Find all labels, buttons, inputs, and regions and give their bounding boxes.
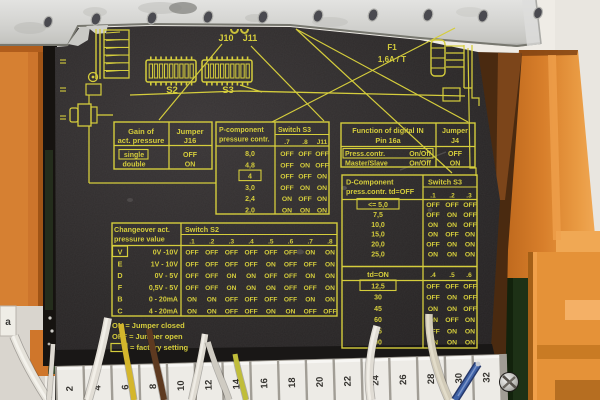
svg-text:0,5V - 5V: 0,5V - 5V [149, 285, 179, 292]
svg-text:OFF: OFF [463, 284, 477, 291]
svg-text:OFF: OFF [185, 285, 198, 292]
svg-text:P-component: P-component [219, 127, 264, 134]
svg-text:OFF: OFF [225, 261, 238, 268]
svg-text:On/Off: On/Off [409, 151, 431, 158]
svg-text:OFF: OFF [183, 152, 198, 159]
svg-text:OFF: OFF [463, 212, 477, 219]
svg-text:ON: ON [266, 309, 276, 316]
svg-text:OFF: OFF [185, 273, 198, 280]
svg-text:Gain of: Gain of [128, 127, 154, 136]
svg-text:ON: ON [246, 285, 256, 292]
svg-text:OFF: OFF [264, 273, 277, 280]
svg-text:OFF: OFF [205, 250, 218, 257]
svg-text:ON: ON [447, 328, 457, 335]
svg-text:16: 16 [259, 378, 270, 389]
svg-text:.1: .1 [430, 193, 436, 200]
svg-text:ON: ON [226, 273, 236, 280]
svg-text:OFF: OFF [284, 273, 297, 280]
svg-text:Jumper: Jumper [176, 127, 203, 136]
svg-text:2,4: 2,4 [245, 196, 255, 203]
svg-text:act. pressure: act. pressure [118, 136, 165, 145]
svg-text:2: 2 [65, 386, 76, 392]
svg-text:OFF: OFF [315, 162, 329, 169]
svg-text:15,0: 15,0 [371, 232, 385, 239]
svg-text:OFF: OFF [463, 222, 477, 229]
svg-text:OFF: OFF [463, 202, 477, 209]
svg-text:ON: ON [465, 328, 475, 335]
svg-text:18: 18 [287, 377, 298, 388]
svg-text:OFF: OFF [185, 261, 198, 268]
svg-text:ON: ON [447, 340, 457, 347]
svg-text:1,6A / T: 1,6A / T [378, 55, 406, 64]
svg-text:ON: ON [305, 297, 315, 304]
svg-text:0V - 5V: 0V - 5V [155, 273, 179, 280]
svg-text:ON: ON [286, 309, 296, 316]
svg-text:single: single [124, 152, 144, 159]
svg-text:ON: ON [266, 261, 276, 268]
svg-text:OFF: OFF [426, 295, 440, 302]
svg-text:ON: ON [187, 309, 197, 316]
svg-text:.7: .7 [284, 139, 290, 146]
svg-text:.6: .6 [466, 272, 472, 279]
svg-text:ON: ON [317, 174, 327, 181]
svg-text:ON: ON [282, 208, 292, 215]
svg-text:ON: ON [325, 250, 335, 257]
svg-text:F: F [118, 283, 123, 292]
svg-text:2,0: 2,0 [245, 208, 255, 215]
svg-text:10,0: 10,0 [371, 222, 385, 229]
svg-text:ON: ON [428, 252, 438, 259]
svg-text:ON: ON [325, 297, 335, 304]
svg-text:0 - 20mA: 0 - 20mA [149, 297, 178, 304]
svg-text:ON: ON [447, 242, 457, 249]
svg-text:.5: .5 [449, 272, 455, 279]
svg-text:ON: ON [300, 162, 310, 169]
svg-text:OFF: OFF [264, 250, 277, 257]
svg-text:S3: S3 [222, 85, 234, 96]
svg-text:OFF: OFF [205, 273, 218, 280]
svg-text:.7: .7 [307, 239, 313, 246]
svg-text:OFF: OFF [284, 297, 297, 304]
svg-text:OFF: OFF [445, 284, 459, 291]
svg-text:Changeover act.: Changeover act. [114, 225, 170, 234]
svg-text:Master/Slave: Master/Slave [345, 161, 388, 168]
svg-text:OFF: OFF [426, 242, 440, 249]
svg-text:OFF: OFF [304, 285, 317, 292]
svg-text:ON: ON [428, 232, 438, 239]
svg-text:ON: ON [447, 295, 457, 302]
svg-text:OFF: OFF [298, 174, 312, 181]
svg-text:OFF: OFF [264, 297, 277, 304]
svg-text:ON: ON [226, 285, 236, 292]
svg-text:J10: J10 [218, 33, 233, 43]
svg-text:.3: .3 [229, 239, 235, 246]
svg-text:.2: .2 [449, 193, 455, 200]
svg-text:ON: ON [300, 208, 310, 215]
svg-text:ON: ON [317, 196, 327, 203]
svg-text:OFF: OFF [245, 309, 258, 316]
svg-text:ON: ON [447, 252, 457, 259]
svg-text:ON: ON [450, 161, 461, 168]
svg-text:C: C [117, 307, 122, 316]
svg-text:30: 30 [374, 295, 382, 302]
svg-text:ON: ON [207, 297, 217, 304]
svg-text:ON: ON [246, 273, 256, 280]
svg-text:E: E [118, 259, 123, 268]
svg-text:12: 12 [203, 379, 214, 390]
svg-text:ON: ON [325, 285, 335, 292]
svg-text:26: 26 [398, 374, 409, 385]
svg-text:press.contr. td=OFF: press.contr. td=OFF [346, 187, 415, 196]
svg-text:S2: S2 [166, 85, 178, 96]
svg-text:pressure value: pressure value [114, 235, 165, 244]
svg-text:ON: ON [428, 222, 438, 229]
svg-text:OFF: OFF [463, 306, 477, 313]
svg-text:D: D [117, 271, 122, 280]
svg-text:60: 60 [374, 317, 382, 324]
svg-text:1V - 10V: 1V - 10V [151, 261, 179, 268]
svg-text:td=ON: td=ON [367, 270, 389, 279]
svg-text:<= 5,0: <= 5,0 [368, 202, 388, 209]
svg-text:4,8: 4,8 [245, 162, 255, 169]
svg-text:OFF: OFF [245, 250, 258, 257]
svg-text:OFF: OFF [284, 261, 297, 268]
svg-text:OFF: OFF [445, 202, 459, 209]
svg-text:4 - 20mA: 4 - 20mA [149, 309, 178, 316]
svg-text:Press.contr.: Press.contr. [345, 151, 385, 158]
svg-text:OFF: OFF [225, 309, 238, 316]
svg-text:J11: J11 [243, 33, 258, 43]
svg-text:ON: ON [428, 306, 438, 313]
svg-text:4: 4 [248, 174, 252, 181]
svg-text:ON: ON [325, 261, 335, 268]
svg-text:ON: ON [447, 222, 457, 229]
svg-text:OFF: OFF [298, 196, 312, 203]
svg-text:OFF: OFF [280, 174, 294, 181]
svg-text:OFF: OFF [445, 232, 459, 239]
svg-text:J16: J16 [184, 136, 197, 145]
svg-text:OFF: OFF [426, 212, 440, 219]
svg-text:ON: ON [325, 273, 335, 280]
svg-text:7,5: 7,5 [373, 212, 383, 219]
svg-text:OFF: OFF [245, 261, 258, 268]
svg-text:OFF: OFF [185, 250, 198, 257]
svg-text:ON: ON [465, 252, 475, 259]
svg-text:.5: .5 [268, 239, 274, 246]
svg-text:ON: ON [282, 196, 292, 203]
svg-text:ON: ON [185, 162, 196, 169]
svg-text:ON: ON [305, 250, 315, 257]
svg-text:.4: .4 [430, 272, 436, 279]
svg-text:20,0: 20,0 [371, 242, 385, 249]
svg-text:.4: .4 [248, 239, 254, 246]
svg-text:20: 20 [315, 376, 326, 387]
svg-text:OFF: OFF [284, 250, 297, 257]
svg-text:ON: ON [187, 297, 197, 304]
svg-text:OFF: OFF [315, 151, 329, 158]
svg-text:B: B [117, 295, 122, 304]
svg-text:.1: .1 [189, 239, 195, 246]
svg-text:OFF: OFF [245, 297, 258, 304]
svg-text:Switch S3: Switch S3 [428, 178, 462, 187]
svg-text:ON: ON [300, 185, 310, 192]
svg-text:0V -10V: 0V -10V [153, 250, 179, 257]
svg-text:OFF: OFF [426, 202, 440, 209]
svg-text:ON: ON [317, 185, 327, 192]
svg-text:OFF: OFF [280, 185, 294, 192]
svg-text:Switch S2: Switch S2 [185, 225, 219, 234]
svg-text:.8: .8 [327, 239, 333, 246]
svg-text:.2: .2 [209, 239, 215, 246]
svg-text:OFF: OFF [298, 151, 312, 158]
svg-text:a: a [5, 317, 11, 328]
svg-text:ON: ON [317, 208, 327, 215]
svg-text:OFF: OFF [284, 285, 297, 292]
svg-text:OFF: OFF [426, 284, 440, 291]
svg-text:ON: ON [465, 242, 475, 249]
svg-text:OFF: OFF [280, 162, 294, 169]
svg-text:OFF: OFF [205, 261, 218, 268]
svg-text:ON: ON [465, 340, 475, 347]
svg-text:Pin 16a: Pin 16a [375, 136, 401, 145]
svg-text:F1: F1 [387, 43, 397, 52]
svg-text:J4: J4 [451, 136, 459, 145]
svg-text:8,0: 8,0 [245, 151, 255, 158]
svg-text:10: 10 [176, 380, 187, 391]
svg-text:Jumper: Jumper [442, 126, 468, 135]
svg-text:ON: ON [266, 285, 276, 292]
svg-text:12,5: 12,5 [371, 284, 385, 291]
svg-text:ON: ON [447, 212, 457, 219]
svg-text:J11: J11 [317, 139, 328, 146]
svg-text:.6: .6 [288, 239, 294, 246]
svg-text:V: V [118, 248, 123, 257]
svg-text:pressure contr.: pressure contr. [219, 137, 270, 144]
svg-text:32: 32 [481, 372, 492, 383]
svg-text:OFF: OFF [280, 151, 294, 158]
svg-text:ON: ON [447, 306, 457, 313]
svg-text:OFF: OFF [225, 297, 238, 304]
svg-text:OFF: OFF [445, 317, 459, 324]
svg-text:OFF: OFF [205, 285, 218, 292]
svg-text:ON: ON [305, 273, 315, 280]
svg-text:OFF: OFF [323, 309, 336, 316]
svg-text:ON: ON [207, 309, 217, 316]
svg-text:OFF: OFF [225, 250, 238, 257]
svg-text:Function of digital IN: Function of digital IN [352, 126, 423, 135]
svg-text:OFF: OFF [304, 261, 317, 268]
svg-text:45: 45 [374, 306, 382, 313]
svg-text:ON: ON [465, 317, 475, 324]
svg-text:25,0: 25,0 [371, 252, 385, 259]
svg-text:22: 22 [342, 376, 353, 387]
svg-text:OFF: OFF [304, 309, 317, 316]
svg-text:double: double [123, 162, 146, 169]
svg-text:.8: .8 [302, 139, 308, 146]
svg-text:On/Off: On/Off [409, 161, 431, 168]
svg-text:D-Component: D-Component [346, 178, 394, 187]
svg-text:3,0: 3,0 [245, 185, 255, 192]
svg-text:= factory setting: = factory setting [130, 343, 189, 352]
svg-text:OFF: OFF [463, 295, 477, 302]
svg-text:Switch S3: Switch S3 [278, 127, 311, 134]
svg-text:.3: .3 [466, 193, 472, 200]
svg-text:OFF: OFF [448, 151, 463, 158]
svg-text:ON: ON [465, 232, 475, 239]
